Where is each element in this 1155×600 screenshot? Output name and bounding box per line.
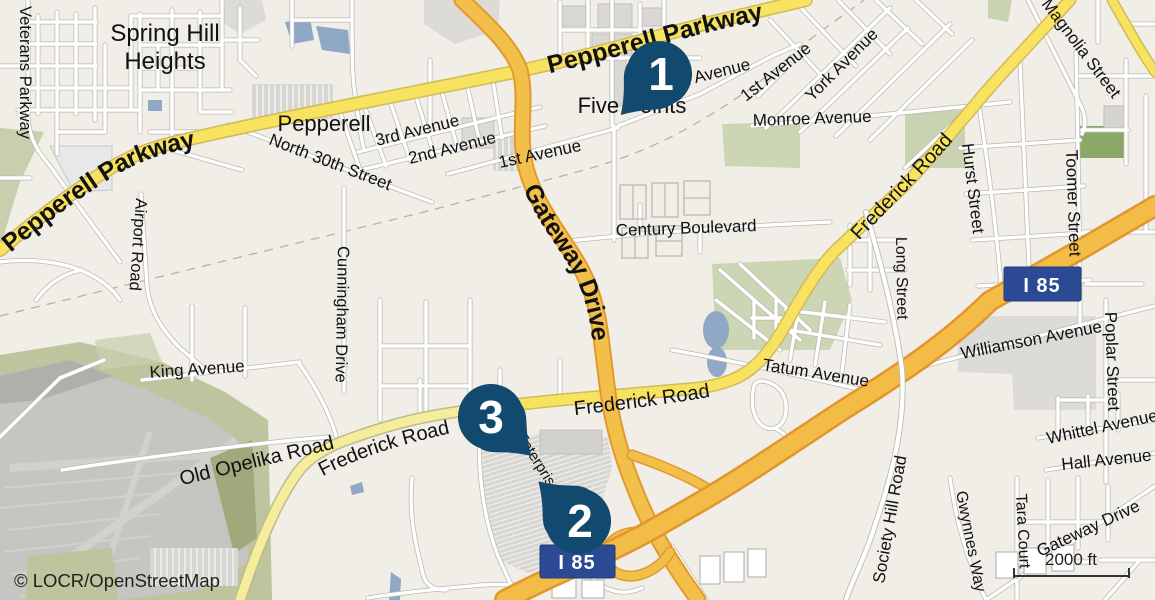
svg-text:Poplar Street: Poplar Street xyxy=(1101,311,1123,411)
svg-text:Long Street: Long Street xyxy=(892,237,910,321)
svg-text:Pepperell: Pepperell xyxy=(278,111,371,136)
svg-text:2000 ft: 2000 ft xyxy=(1045,550,1097,569)
svg-text:Veterans Parkway: Veterans Parkway xyxy=(16,6,34,140)
svg-text:I 85: I 85 xyxy=(558,552,595,574)
svg-text:Heights: Heights xyxy=(124,48,205,75)
svg-text:2: 2 xyxy=(567,495,593,547)
svg-text:© LOCR/OpenStreetMap: © LOCR/OpenStreetMap xyxy=(14,570,220,591)
svg-text:1: 1 xyxy=(648,48,674,100)
svg-text:I 85: I 85 xyxy=(1023,275,1060,297)
svg-text:3: 3 xyxy=(478,391,504,443)
svg-text:Toomer Street: Toomer Street xyxy=(1062,149,1085,257)
svg-text:Spring Hill: Spring Hill xyxy=(110,20,219,47)
svg-text:Cunningham Drive: Cunningham Drive xyxy=(332,246,352,383)
